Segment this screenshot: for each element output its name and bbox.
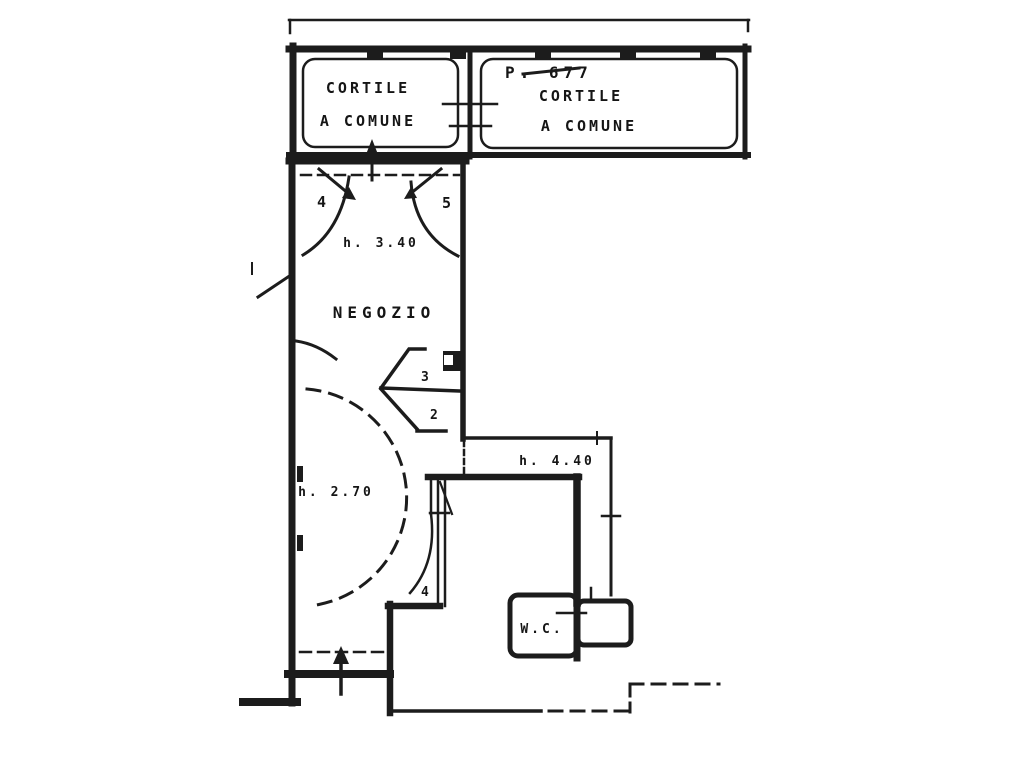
door-number-front-left: 4 <box>317 193 329 211</box>
wall-fixture-notch <box>444 355 453 365</box>
wall-pilaster-bump <box>297 535 303 551</box>
wc-area: W.C. <box>510 588 631 658</box>
corridor: h. 4.40 <box>428 432 620 603</box>
floor-plan-scan: CORTILE A COMUNE P. 677 CORTILE A COMUNE… <box>0 0 1024 768</box>
floor-plan-drawing: CORTILE A COMUNE P. 677 CORTILE A COMUNE… <box>0 0 1024 768</box>
courtyard-left-label-line2: A COMUNE <box>320 112 416 130</box>
courtyard-right-label-line1: CORTILE <box>539 87 623 105</box>
boundary-bottom <box>389 684 719 712</box>
shop-lower: h. 2.70 <box>243 389 407 702</box>
site-boundary-top <box>289 20 749 33</box>
door-number-rear: 4 <box>421 585 432 600</box>
pilaster <box>367 50 383 59</box>
door-swing-tick-left <box>319 169 349 194</box>
arrow-lower-edge <box>381 389 417 429</box>
pilaster <box>535 50 551 59</box>
height-corridor-label: h. 4.40 <box>519 454 595 469</box>
number-mid-upper: 3 <box>421 370 432 385</box>
door-leaf-left-wall <box>296 341 336 359</box>
height-back-label: h. 2.70 <box>298 485 374 500</box>
pilaster <box>450 50 466 59</box>
arrow-upper-edge <box>381 349 425 388</box>
courtyard-left-label-line1: CORTILE <box>326 79 410 97</box>
wc-adjacent-room-outline <box>578 601 631 645</box>
rear-door: 4 <box>388 481 440 713</box>
courtyard-left-inner-line <box>303 59 458 147</box>
wc-label: W.C. <box>520 622 563 637</box>
inner-room <box>430 478 452 606</box>
number-mid-lower: 2 <box>430 408 441 423</box>
wall-pilaster-bump <box>297 466 303 482</box>
shop-name-label: NEGOZIO <box>333 303 435 322</box>
direction-arrow: 3 2 <box>381 349 463 431</box>
entry-arrow-bottom-head <box>333 646 349 664</box>
pilaster <box>700 50 716 59</box>
pilaster <box>620 50 636 59</box>
height-front-label: h. 3.40 <box>343 236 419 251</box>
wall-leader-diagonal <box>258 277 288 297</box>
rear-door-arc <box>410 514 432 593</box>
door-number-front-right: 5 <box>442 194 454 212</box>
courtyard-right-label-line2: A COMUNE <box>541 117 637 135</box>
arrow-middle-line <box>381 388 461 391</box>
door-swing-tick-right <box>410 169 441 194</box>
